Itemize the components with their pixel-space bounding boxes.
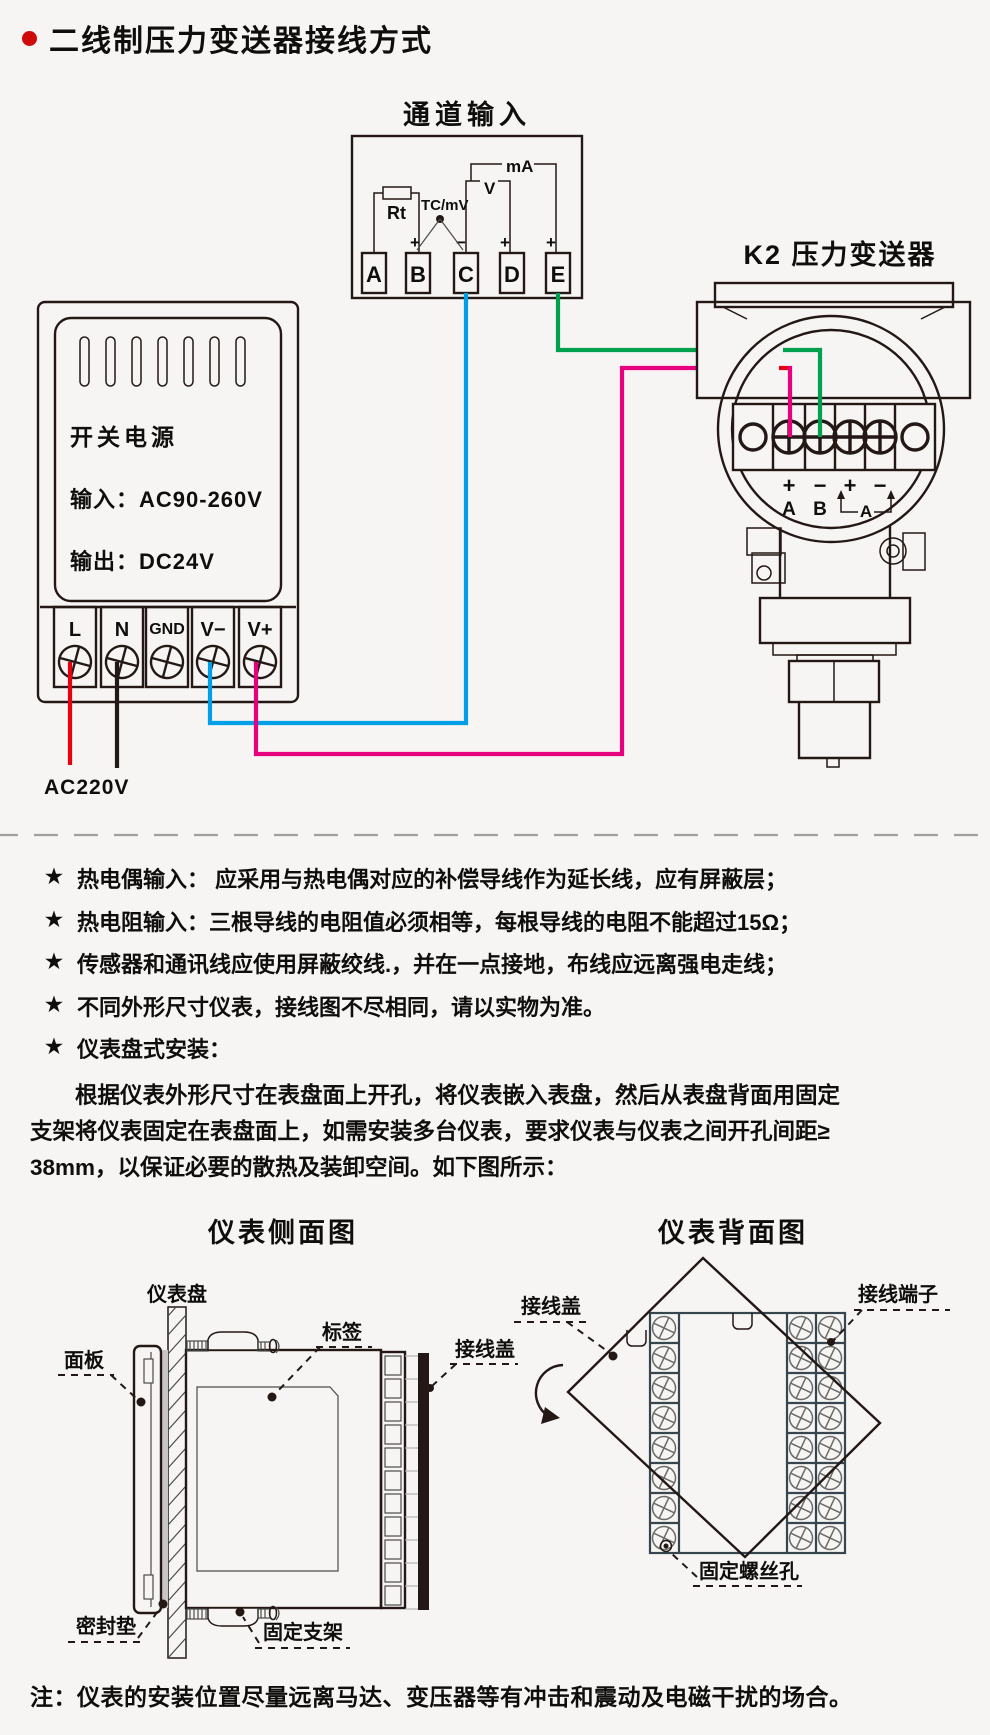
page-title: 二线制压力变送器接线方式	[22, 16, 433, 60]
channel-terminals: A B C D E	[362, 253, 570, 293]
side-cover-label: 接线盖	[455, 1337, 515, 1361]
terminal-a-label: A	[366, 262, 382, 287]
note-text: 热电阻输入：三根导线的电阻值必须相等，每根导线的电阻不能超过15Ω；	[77, 905, 801, 937]
side-view-title: 仪表侧面图	[207, 1218, 358, 1248]
channel-input-box: 通道输入 A B C D E + − + +	[352, 99, 582, 298]
footer-note: 注：仪表的安装位置尽量远离马达、变压器等有冲击和震动及电磁干扰的场合。	[30, 1678, 980, 1712]
rotation-arrow	[536, 1365, 563, 1424]
psu-terminal-strip: L N GND V− V+	[54, 607, 281, 687]
transmitter-title: K2 压力变送器	[743, 239, 936, 270]
paragraph-line: 根据仪表外形尺寸在表盘面上开孔，将仪表嵌入表盘，然后从表盘背面用固定	[30, 1078, 970, 1114]
instrument-body	[186, 1350, 381, 1608]
bracket-label: 固定支架	[263, 1620, 343, 1644]
star-bullet-icon: ★	[45, 947, 77, 974]
note-item: ★ 传感器和通讯线应使用屏蔽绞线.，并在一点接地，布线应远离强电走线；	[45, 947, 965, 990]
wire-loop-magenta	[256, 368, 700, 754]
channel-input-title: 通道输入	[403, 99, 531, 130]
sensor-stem	[760, 525, 910, 767]
note-item: ★ 仪表盘式安装：	[45, 1032, 965, 1075]
t-sign-4: −	[874, 473, 887, 498]
screw-hole-label: 固定螺丝孔	[699, 1559, 799, 1583]
back-panel	[627, 1313, 845, 1554]
t-letter-a: A	[782, 499, 796, 520]
terminal-e-label: E	[551, 262, 566, 287]
paragraph-line: 38mm，以保证必要的散热及装卸空间。如下图所示：	[30, 1150, 970, 1186]
t-sign-2: −	[814, 473, 827, 498]
pressure-transmitter: K2 压力变送器	[697, 239, 970, 767]
t-letter-b: B	[813, 499, 827, 520]
note-text: 不同外形尺寸仪表，接线图不尽相同，请以实物为准。	[77, 990, 605, 1022]
rear-terminal-column	[381, 1352, 429, 1610]
terminal-b-label: B	[410, 262, 426, 287]
terminal-block-label: 接线端子	[858, 1282, 938, 1306]
note-item: ★ 热电阻输入：三根导线的电阻值必须相等，每根导线的电阻不能超过15Ω；	[45, 905, 965, 948]
terminal-d-label: D	[504, 262, 520, 287]
psu-vents	[80, 337, 245, 386]
paragraph-line: 支架将仪表固定在表盘面上，如需安装多台仪表，要求仪表与仪表之间开孔间距≥	[30, 1114, 970, 1150]
wire-loop-green	[558, 293, 700, 350]
psu-terminal-l: L	[69, 619, 81, 641]
wires	[70, 293, 700, 768]
star-bullet-icon: ★	[45, 1032, 77, 1059]
note-text: 传感器和通讯线应使用屏蔽绞线.，并在一点接地，布线应远离强电走线；	[77, 947, 787, 979]
note-item: ★ 不同外形尺寸仪表，接线图不尽相同，请以实物为准。	[45, 990, 965, 1033]
tc-mv-label: TC/mV	[421, 197, 469, 214]
transmitter-terminal-labels: + − + − A B A	[782, 473, 895, 521]
front-bezel	[134, 1346, 161, 1613]
t-sign-1: +	[783, 473, 796, 498]
loop-letter: A	[860, 502, 872, 521]
back-cover-label: 接线盖	[521, 1294, 581, 1318]
page-title-text: 二线制压力变送器接线方式	[49, 16, 433, 60]
note-text: 仪表盘式安装：	[77, 1032, 231, 1064]
sign-e: +	[546, 233, 556, 252]
psu-terminal-n: N	[115, 619, 129, 641]
psu-output-spec: 输出：DC24V	[70, 549, 215, 574]
back-view-callouts: 接线盖 接线端子 固定螺丝孔	[514, 1282, 950, 1586]
document-page: 通道输入 A B C D E + − + +	[0, 0, 990, 1735]
star-bullet-icon: ★	[45, 862, 77, 889]
side-view-callouts: 仪表盘 标签 面板 接线盖 密封垫 固定支架	[58, 1282, 518, 1648]
mounting-ears	[747, 528, 925, 583]
psu-terminal-vminus: V−	[200, 619, 225, 641]
terminal-c-label: C	[458, 262, 474, 287]
side-view-diagram: 仪表侧面图	[58, 1218, 518, 1677]
label-sticker	[197, 1387, 338, 1571]
channel-polarity-signs: + − + +	[410, 233, 556, 252]
notes-list: ★ 热电偶输入： 应采用与热电偶对应的补偿导线作为延长线，应有屏蔽层； ★ 热电…	[45, 862, 965, 1075]
psu-terminal-gnd: GND	[149, 621, 185, 638]
transmitter-terminal-block	[733, 404, 935, 470]
ma-label: mA	[506, 157, 533, 176]
psu-terminal-vplus: V+	[247, 619, 272, 641]
sticker-label: 标签	[322, 1320, 363, 1344]
current-bracket: mA	[471, 157, 556, 253]
edge-notch	[627, 1330, 646, 1346]
terminal-cover-bar	[418, 1353, 429, 1610]
sign-d: +	[500, 233, 510, 252]
panel-wall	[168, 1296, 186, 1677]
red-bullet-icon	[22, 31, 37, 46]
back-view-title: 仪表背面图	[657, 1218, 808, 1248]
rt-label: Rt	[387, 203, 406, 223]
mains-voltage-label: AC220V	[44, 776, 129, 799]
gasket-label: 密封垫	[76, 1614, 136, 1638]
t-sign-3: +	[844, 473, 857, 498]
top-notch	[733, 1313, 752, 1329]
panel-board-label: 仪表盘	[146, 1282, 207, 1306]
v-label: V	[484, 179, 496, 198]
psu-input-spec: 输入：AC90-260V	[70, 487, 263, 512]
psu-screws	[55, 642, 279, 681]
back-view-diagram: 仪表背面图	[514, 1218, 950, 1586]
note-text: 热电偶输入： 应采用与热电偶对应的补偿导线作为延长线，应有屏蔽层；	[77, 862, 787, 894]
installation-paragraph: 根据仪表外形尺寸在表盘面上开孔，将仪表嵌入表盘，然后从表盘背面用固定 支架将仪表…	[30, 1078, 970, 1186]
star-bullet-icon: ★	[45, 990, 77, 1017]
psu-name: 开关电源	[70, 424, 178, 450]
note-item: ★ 热电偶输入： 应采用与热电偶对应的补偿导线作为延长线，应有屏蔽层；	[45, 862, 965, 905]
front-panel-label: 面板	[64, 1348, 105, 1372]
star-bullet-icon: ★	[45, 905, 77, 932]
